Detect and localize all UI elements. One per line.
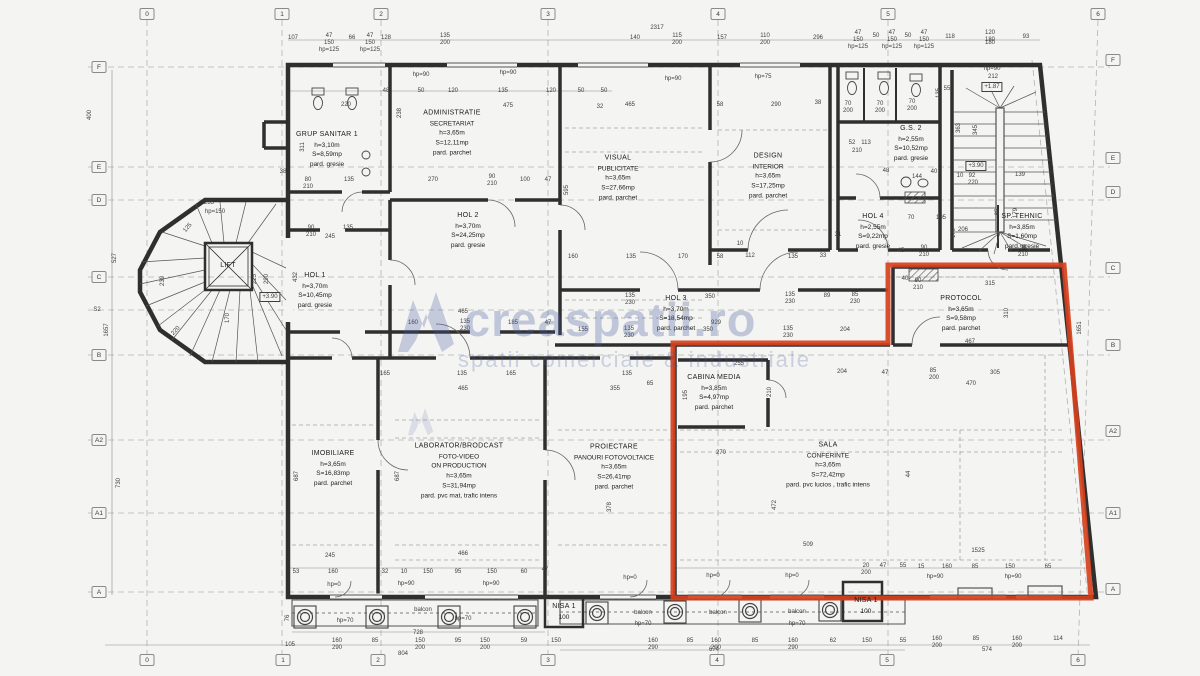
- parapet-height-label: hp=0: [785, 573, 799, 579]
- parapet-height-label: hp=0: [706, 573, 720, 579]
- dimension-label: 50: [578, 88, 585, 94]
- dimension-label: 220: [968, 180, 978, 186]
- dimension-label: 363: [956, 123, 962, 133]
- dimension-label: 47: [542, 567, 549, 573]
- dimension-label: 85: [930, 368, 937, 374]
- dimension-label: 204: [840, 327, 850, 333]
- dimension-label: 210: [1018, 252, 1028, 258]
- dimension-label: 150: [324, 40, 334, 46]
- room-detail: h=3,65m: [940, 305, 982, 315]
- dimension-label: 466: [458, 551, 468, 557]
- parapet-height-label: hp=0: [327, 582, 341, 588]
- dimension-label: 475: [503, 103, 513, 109]
- room-name: HOL 3: [657, 294, 695, 305]
- dimension-label: balcon: [709, 610, 727, 616]
- dimension-label: 290: [264, 274, 270, 284]
- grid-bubble-right-C: C: [1106, 262, 1121, 274]
- parapet-height-label: hp=125: [319, 47, 339, 53]
- dimension-label: 206: [958, 227, 968, 233]
- dimension-label: 95: [455, 638, 462, 644]
- dimension-label: 170: [951, 228, 957, 238]
- room-detail: pard. pvc mat, trafic intens: [415, 491, 504, 501]
- dimension-label: 170: [225, 313, 231, 323]
- room-name: DESIGN: [749, 151, 787, 162]
- dimension-label: 150: [487, 569, 497, 575]
- dimension-label: 150: [1005, 564, 1015, 570]
- dimension-label: 32: [382, 569, 389, 575]
- dimension-label: 20: [863, 563, 870, 569]
- room-detail: pard. parchet: [940, 324, 982, 334]
- dimension-label: 33: [820, 253, 827, 259]
- dimension-label: balcon: [414, 607, 432, 613]
- parapet-height-label: hp=70: [789, 621, 806, 627]
- dimension-label: 210: [852, 148, 862, 154]
- room-name: HOL 4: [856, 212, 890, 223]
- dimension-label: 50: [418, 88, 425, 94]
- dimension-label: 157: [717, 35, 727, 41]
- room-detail: S=12,11mp: [423, 138, 480, 148]
- dimension-label: 114: [1053, 636, 1063, 642]
- dimension-label: 160: [711, 638, 721, 644]
- dimension-label: 238: [397, 108, 403, 118]
- dimension-label: 135: [625, 293, 635, 299]
- room-detail: h=3,70m: [657, 305, 695, 315]
- grid-bubble-right-A2: A2: [1106, 425, 1121, 437]
- room-label-protocol: PROTOCOLh=3,65mS=9,58mppard. parchet: [940, 294, 982, 334]
- room-detail: S=1,60mp: [1001, 232, 1042, 242]
- grid-bubble-top-2: 2: [374, 8, 389, 20]
- room-label-lift: LIFT: [220, 261, 236, 272]
- dimension-label: 45: [898, 248, 905, 254]
- grid-bubble-top-5: 5: [881, 8, 896, 20]
- grid-bubble-bottom-1: 1: [276, 654, 291, 666]
- dimension-label: 290: [788, 645, 798, 651]
- parapet-height-label: hp=75: [755, 74, 772, 80]
- dimension-label: 2317: [650, 25, 663, 31]
- room-detail: h=3,70m: [451, 222, 485, 232]
- dimension-label: 160: [788, 638, 798, 644]
- dimension-label: 200: [480, 645, 490, 651]
- dimension-label: 62: [830, 638, 837, 644]
- dimension-label: 47: [326, 33, 333, 39]
- room-detail: S=24,25mp: [451, 231, 485, 241]
- dimension-label: 85: [852, 292, 859, 298]
- dimension-label: 10: [957, 173, 964, 179]
- grid-bubble-left-A1: A1: [92, 507, 107, 519]
- dimension-label: 47: [545, 320, 552, 326]
- room-detail: pard. parchet: [657, 324, 695, 334]
- dimension-label: 210: [913, 285, 923, 291]
- dimension-label: 160: [332, 638, 342, 644]
- dimension-label: 48: [383, 88, 390, 94]
- room-detail: PUBLICITATE: [598, 164, 639, 174]
- room-detail: pard. parchet: [574, 482, 654, 492]
- parapet-height-label: hp=150: [205, 209, 225, 215]
- room-detail: FOTO-VIDEO: [415, 452, 504, 462]
- dimension-label: 90: [489, 174, 496, 180]
- room-name: SALA: [786, 440, 870, 451]
- room-detail: h=3,65m: [598, 174, 639, 184]
- grid-bubble-right-A1: A1: [1106, 507, 1121, 519]
- parapet-height-label: hp=90: [927, 574, 944, 580]
- parapet-height-label: hp=90: [665, 76, 682, 82]
- dimension-label: 90: [921, 245, 928, 251]
- dimension-label: 47: [855, 30, 862, 36]
- dimension-label: 150: [887, 37, 897, 43]
- parapet-height-label: hp=90: [398, 581, 415, 587]
- grid-bubble-right-F: F: [1106, 54, 1121, 66]
- dimension-label: 290: [332, 645, 342, 651]
- dimension-label: 85: [995, 209, 1001, 216]
- grid-bubble-bottom-6: 6: [1071, 654, 1086, 666]
- dimension-label: 230: [460, 326, 470, 332]
- dimension-label: 200: [440, 40, 450, 46]
- room-name: G.S. 2: [894, 124, 928, 135]
- dimension-label: 135: [460, 319, 470, 325]
- dimension-label: 135: [498, 88, 508, 94]
- dimension-label: 200: [415, 645, 425, 651]
- dimension-label: 80: [305, 177, 312, 183]
- dimension-label: 135: [344, 177, 354, 183]
- dimension-label: 70: [845, 101, 852, 107]
- dimension-label: 59: [521, 638, 528, 644]
- room-detail: h=3,65m: [423, 129, 480, 139]
- dimension-label: 220: [341, 102, 351, 108]
- room-detail: pard. gresie: [451, 241, 485, 251]
- grid-bubble-right-D: D: [1106, 186, 1121, 198]
- dimension-label: 150: [423, 569, 433, 575]
- dimension-label: 10: [401, 569, 408, 575]
- room-detail: S=9,22mp: [856, 232, 890, 242]
- room-detail: pard. parchet: [311, 479, 354, 489]
- dimension-label: 50: [905, 33, 912, 39]
- dimension-label: 135: [936, 88, 942, 98]
- dimension-label: 135: [440, 33, 450, 39]
- grid-bubble-bottom-3: 3: [541, 654, 556, 666]
- dimension-label: 40: [931, 169, 938, 175]
- dimension-label: 728: [413, 630, 423, 636]
- dimension-label: 200: [875, 108, 885, 114]
- dimension-label: 160: [1012, 636, 1022, 642]
- dimension-label: 1657: [104, 323, 110, 336]
- dimension-label: 687: [294, 471, 300, 481]
- dimension-label: 160: [408, 320, 418, 326]
- dimension-label: 595: [564, 185, 570, 195]
- room-detail: S=26,41mp: [574, 472, 654, 482]
- balcony: [292, 586, 1062, 626]
- room-label-design-interior: DESIGNINTERIORh=3,65mS=17,25mppard. parc…: [749, 151, 787, 201]
- dimension-label: 230: [785, 299, 795, 305]
- room-label-sp-tehnic: SP. TEHNICh=3,85mS=1,60mppard. gresie: [1001, 212, 1042, 252]
- room-name: ADMINISTRATIE: [423, 108, 480, 119]
- dimension-label: 150: [415, 638, 425, 644]
- dimension-label: 135: [788, 254, 798, 260]
- elevation-marker: +3.90: [965, 161, 986, 171]
- dimension-label: 128: [381, 35, 391, 41]
- dimension-label: 527: [112, 253, 118, 263]
- room-detail: ON PRODUCTION: [415, 462, 504, 472]
- room-label-administratie-secretariat: ADMINISTRATIESECRETARIATh=3,65mS=12,11mp…: [423, 108, 480, 158]
- dimension-label: 70: [877, 101, 884, 107]
- room-detail: S=31,94mp: [415, 481, 504, 491]
- dimension-label: 105: [936, 215, 946, 221]
- dimension-label: 230: [624, 333, 634, 339]
- room-label-visual-publicitate: VISUALPUBLICITATEh=3,65mS=27,66mppard. p…: [598, 153, 639, 203]
- dimension-label: 230: [625, 300, 635, 306]
- dimension-label: 315: [985, 281, 995, 287]
- dimension-label: 70: [908, 215, 915, 221]
- grid-bubble-left-A: A: [92, 586, 107, 598]
- room-detail: S=8,59mp: [296, 150, 358, 160]
- dimension-label: 400: [87, 110, 93, 120]
- dimension-label: 135: [785, 292, 795, 298]
- room-label-grup-sanitar-1: GRUP SANITAR 1h=3,10mS=8,59mppard. gresi…: [296, 130, 358, 170]
- dimension-label: 135: [624, 326, 634, 332]
- dimension-label: 255: [734, 361, 744, 367]
- dimension-label: 40: [902, 276, 909, 282]
- dimension-label: 200: [932, 643, 942, 649]
- parapet-height-label: hp=70: [455, 616, 472, 622]
- dimension-label: 230: [783, 333, 793, 339]
- dimension-label: 135: [343, 225, 353, 231]
- dimension-label: 139: [1015, 172, 1025, 178]
- dimension-label: 47: [882, 370, 889, 376]
- room-detail: pard. parchet: [598, 193, 639, 203]
- dimension-label: 150: [853, 37, 863, 43]
- dimension-label: 290: [771, 102, 781, 108]
- dimension-label: 135: [626, 254, 636, 260]
- room-detail: h=3,65m: [415, 471, 504, 481]
- dimension-label: 170: [678, 254, 688, 260]
- dimension-label: 47: [880, 563, 887, 569]
- dimension-label: 509: [803, 542, 813, 548]
- dimension-label: 210: [919, 252, 929, 258]
- dimension-label: 118: [945, 34, 955, 40]
- parapet-height-label: hp=90: [483, 581, 500, 587]
- dimension-label: 31: [835, 232, 842, 238]
- grid-bubble-top-6: 6: [1091, 8, 1106, 20]
- dimension-label: 200: [760, 40, 770, 46]
- room-detail: pard. parchet: [749, 191, 787, 201]
- grid-bubble-top-3: 3: [541, 8, 556, 20]
- dimension-label: 65: [1045, 564, 1052, 570]
- elevation-marker: +3.90: [259, 292, 280, 302]
- room-detail: 100: [552, 612, 576, 622]
- room-detail: pard. parchet: [423, 148, 480, 158]
- room-detail: CONFERINTE: [786, 451, 870, 461]
- room-detail: h=2,55m: [856, 223, 890, 233]
- room-detail: h=3,65m: [786, 461, 870, 471]
- dimension-label: 50: [873, 33, 880, 39]
- grid-bubble-right-A: A: [1106, 583, 1121, 595]
- dimension-label: 150: [365, 40, 375, 46]
- room-detail: pard. gresie: [894, 154, 928, 164]
- dimension-label: 110: [760, 33, 770, 39]
- dimension-label: 52: [849, 140, 856, 146]
- dimension-label: 204: [837, 369, 847, 375]
- dimension-label: 200: [1012, 643, 1022, 649]
- dimension-label: 38: [280, 169, 287, 175]
- dimension-label: 115: [672, 33, 682, 39]
- room-detail: h=2,55m: [894, 135, 928, 145]
- grid-bubble-bottom-4: 4: [710, 654, 725, 666]
- room-name: PROTOCOL: [940, 294, 982, 305]
- dimension-label: 305: [990, 370, 1000, 376]
- room-label-proiectare-fotovoltaice: PROIECTAREPANOURI FOTOVOLTAICEh=3,65mS=2…: [574, 442, 654, 492]
- room-detail: S=10,45mp: [298, 291, 332, 301]
- room-label-imobiliare: IMOBILIAREh=3,65mS=16,83mppard. parchet: [311, 449, 354, 489]
- dimension-label: 135: [622, 371, 632, 377]
- dimension-label: 350: [705, 294, 715, 300]
- dimension-label: 472: [772, 500, 778, 510]
- dimension-label: 55: [900, 638, 907, 644]
- dimension-label: 76: [285, 615, 291, 622]
- room-detail: S=4,97mp: [687, 393, 740, 403]
- dimension-label: 70: [909, 99, 916, 105]
- room-detail: h=3,85m: [1001, 223, 1042, 233]
- dimension-label: 66: [349, 35, 356, 41]
- room-name: LABORATOR/BRODCAST: [415, 441, 504, 452]
- parapet-height-label: hp=125: [882, 44, 902, 50]
- dimension-label: 150: [480, 638, 490, 644]
- grid-bubble-bottom-5: 5: [880, 654, 895, 666]
- dimension-label: 93: [1023, 34, 1030, 40]
- dimension-label: 85: [687, 638, 694, 644]
- room-detail: PANOURI FOTOVOLTAICE: [574, 453, 654, 463]
- dimension-label: 212: [988, 74, 998, 80]
- room-name: CABINA MEDIA: [687, 373, 740, 384]
- dimension-label: 185: [508, 320, 518, 326]
- dimension-label: 112: [745, 253, 755, 259]
- dimension-label: 120: [546, 88, 556, 94]
- dimension-label: 465: [458, 309, 468, 315]
- dimension-label: 210: [303, 184, 313, 190]
- elevation-marker: +1.87: [981, 82, 1002, 92]
- grid-bubble-left-F: F: [92, 61, 107, 73]
- room-detail: h=3,70m: [298, 282, 332, 292]
- dimension-label: 245: [325, 553, 335, 559]
- dimension-label: 200: [907, 106, 917, 112]
- dimension-label: 465: [458, 386, 468, 392]
- room-label-laborator-brodcast: LABORATOR/BRODCASTFOTO-VIDEOON PRODUCTIO…: [415, 441, 504, 500]
- room-detail: pard. gresie: [298, 301, 332, 311]
- parapet-height-label: hp=90: [984, 66, 1001, 72]
- dimension-label: 230: [850, 299, 860, 305]
- dimension-label: 140: [630, 35, 640, 41]
- dimension-label: 85: [972, 564, 979, 570]
- parapet-height-label: hp=70: [337, 618, 354, 624]
- parapet-height-label: hp=90: [1005, 574, 1022, 580]
- room-detail: pard. pvc lucios , trafic intens: [786, 480, 870, 490]
- dimension-label: 55: [944, 86, 951, 92]
- room-detail: h=3,10m: [296, 141, 358, 151]
- dimension-label: 296: [813, 35, 823, 41]
- parapet-height-label: hp=90: [500, 70, 517, 76]
- room-detail: S=16,83mp: [311, 469, 354, 479]
- grid-bubble-right-B: B: [1106, 339, 1121, 351]
- room-label-cabina-media: CABINA MEDIAh=3,85mS=4,97mppard. parchet: [687, 373, 740, 413]
- dimension-label: 150: [919, 37, 929, 43]
- room-detail: h=3,65m: [311, 460, 354, 470]
- grid-bubble-top-1: 1: [275, 8, 290, 20]
- dimension-label: 200: [672, 40, 682, 46]
- dimension-label: 55: [900, 563, 907, 569]
- dimension-label: 107: [288, 35, 298, 41]
- dimension-label: 92: [969, 173, 976, 179]
- parapet-height-label: hp=70: [635, 621, 652, 627]
- room-name: PROIECTARE: [574, 442, 654, 453]
- grid-bubble-left-E: E: [92, 161, 107, 173]
- room-detail: S=17,25mp: [749, 181, 787, 191]
- dimension-label: 120: [985, 30, 995, 36]
- dimension-label: S2: [93, 307, 100, 313]
- dimension-label: 47: [889, 30, 896, 36]
- dimension-label: 200: [861, 570, 871, 576]
- dimension-label: 270: [716, 450, 726, 456]
- dimension-label: balcon: [788, 609, 806, 615]
- room-name: LIFT: [220, 261, 236, 272]
- dimension-label: 160: [328, 569, 338, 575]
- grid-bubble-left-D: D: [92, 194, 107, 206]
- room-detail: S=10,52mp: [894, 144, 928, 154]
- room-name: HOL 1: [298, 271, 332, 282]
- room-label-hol-2: HOL 2h=3,70mS=24,25mppard. gresie: [451, 211, 485, 251]
- room-detail: pard. gresie: [296, 160, 358, 170]
- dimension-label: 85: [973, 636, 980, 642]
- dimension-label: 465: [625, 102, 635, 108]
- dimension-label: 48: [883, 168, 890, 174]
- dimension-label: 65: [647, 381, 654, 387]
- room-name: NISA 1: [552, 602, 576, 613]
- dimension-label: 135: [457, 371, 467, 377]
- parapet-height-label: hp=125: [914, 44, 934, 50]
- dimension-label: 85: [752, 638, 759, 644]
- grid-bubble-top-4: 4: [711, 8, 726, 20]
- dimension-label: 355: [610, 386, 620, 392]
- parapet-height-label: hp=0: [623, 575, 637, 581]
- dimension-label: 674: [709, 647, 719, 653]
- dimension-label: 113: [861, 140, 871, 146]
- dimension-label: 350: [703, 327, 713, 333]
- wall-opening: [284, 238, 293, 322]
- dimension-label: 804: [398, 651, 408, 657]
- grid-bubble-left-C: C: [92, 271, 107, 283]
- dimension-label: 239: [160, 276, 166, 286]
- dimension-label: 310: [1004, 308, 1010, 318]
- dimension-label: 58: [717, 102, 724, 108]
- grid-bubble-left-A2: A2: [92, 434, 107, 446]
- dimension-label: 245: [325, 234, 335, 240]
- dimension-label: 929: [711, 320, 721, 326]
- dimension-label: 1525: [971, 548, 984, 554]
- room-detail: INTERIOR: [749, 162, 787, 172]
- room-detail: pard. gresie: [1001, 242, 1042, 252]
- grid-bubble-bottom-2: 2: [371, 654, 386, 666]
- dimension-label: 53: [293, 569, 300, 575]
- room-detail: 100: [854, 606, 878, 616]
- dimension-label: 687: [395, 471, 401, 481]
- grid-lines: [88, 20, 1110, 658]
- dimension-label: 290: [648, 645, 658, 651]
- dimension-label: 574: [982, 647, 992, 653]
- dimension-label: 150: [862, 638, 872, 644]
- dimension-label: 95: [455, 569, 462, 575]
- dimension-label: 210: [487, 181, 497, 187]
- dimension-label: 47: [545, 177, 552, 183]
- dimension-label: 120: [448, 88, 458, 94]
- room-name: GRUP SANITAR 1: [296, 130, 358, 141]
- dimension-label: balcon: [634, 610, 652, 616]
